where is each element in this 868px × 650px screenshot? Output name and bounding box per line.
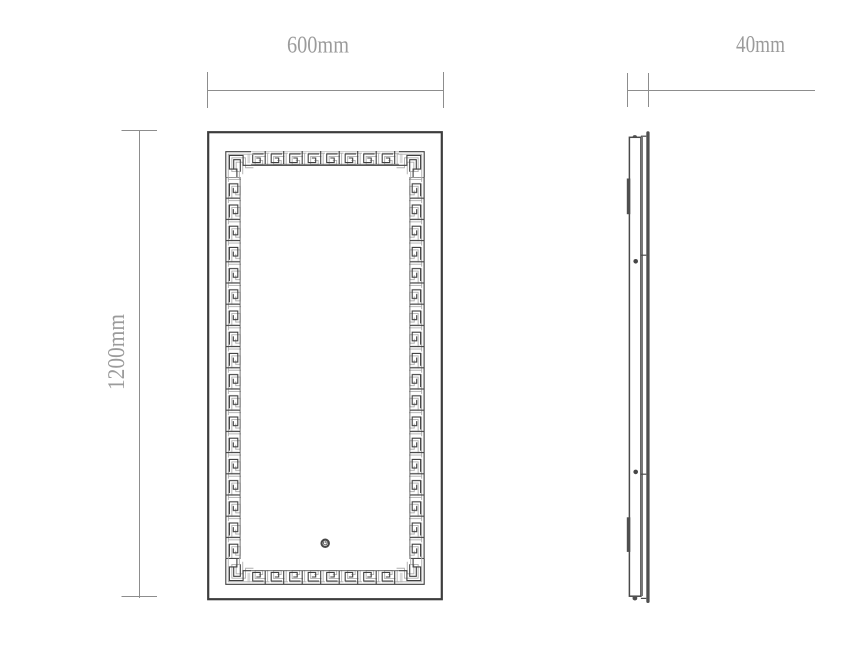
svg-text:600mm: 600mm: [287, 32, 349, 58]
svg-text:40mm: 40mm: [736, 32, 785, 58]
svg-text:1200mm: 1200mm: [104, 314, 130, 390]
